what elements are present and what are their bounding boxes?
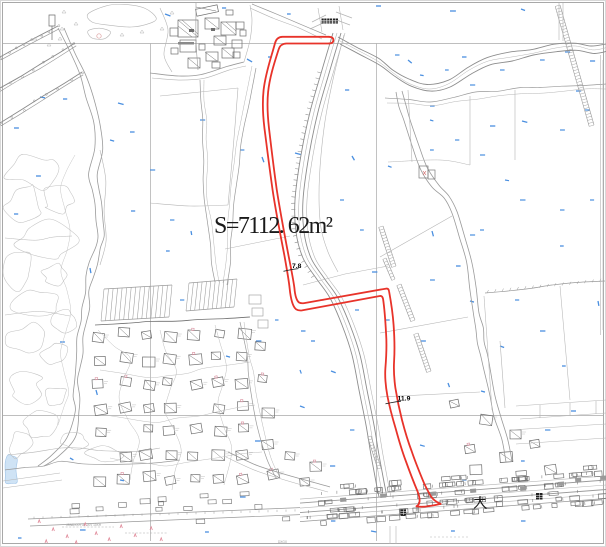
svg-text:11.9: 11.9: [398, 396, 411, 403]
svg-text:DXGX: DXGX: [278, 540, 288, 544]
svg-text:JSNDXXH 04 1KV 10XH: JSNDXXH 04 1KV 10XH: [66, 523, 102, 527]
svg-text:S=7112. 62m²: S=7112. 62m²: [214, 213, 333, 239]
svg-text:7.8: 7.8: [292, 263, 302, 270]
